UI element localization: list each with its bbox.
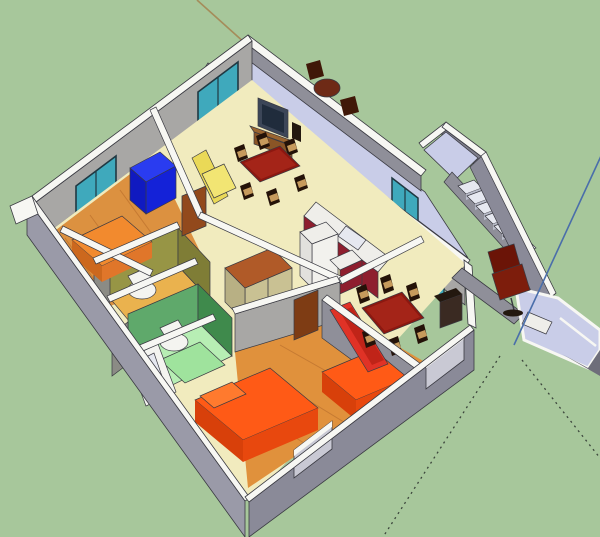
scene-canvas bbox=[0, 0, 600, 537]
model-viewport[interactable] bbox=[0, 0, 600, 537]
balcony-table bbox=[314, 79, 340, 97]
